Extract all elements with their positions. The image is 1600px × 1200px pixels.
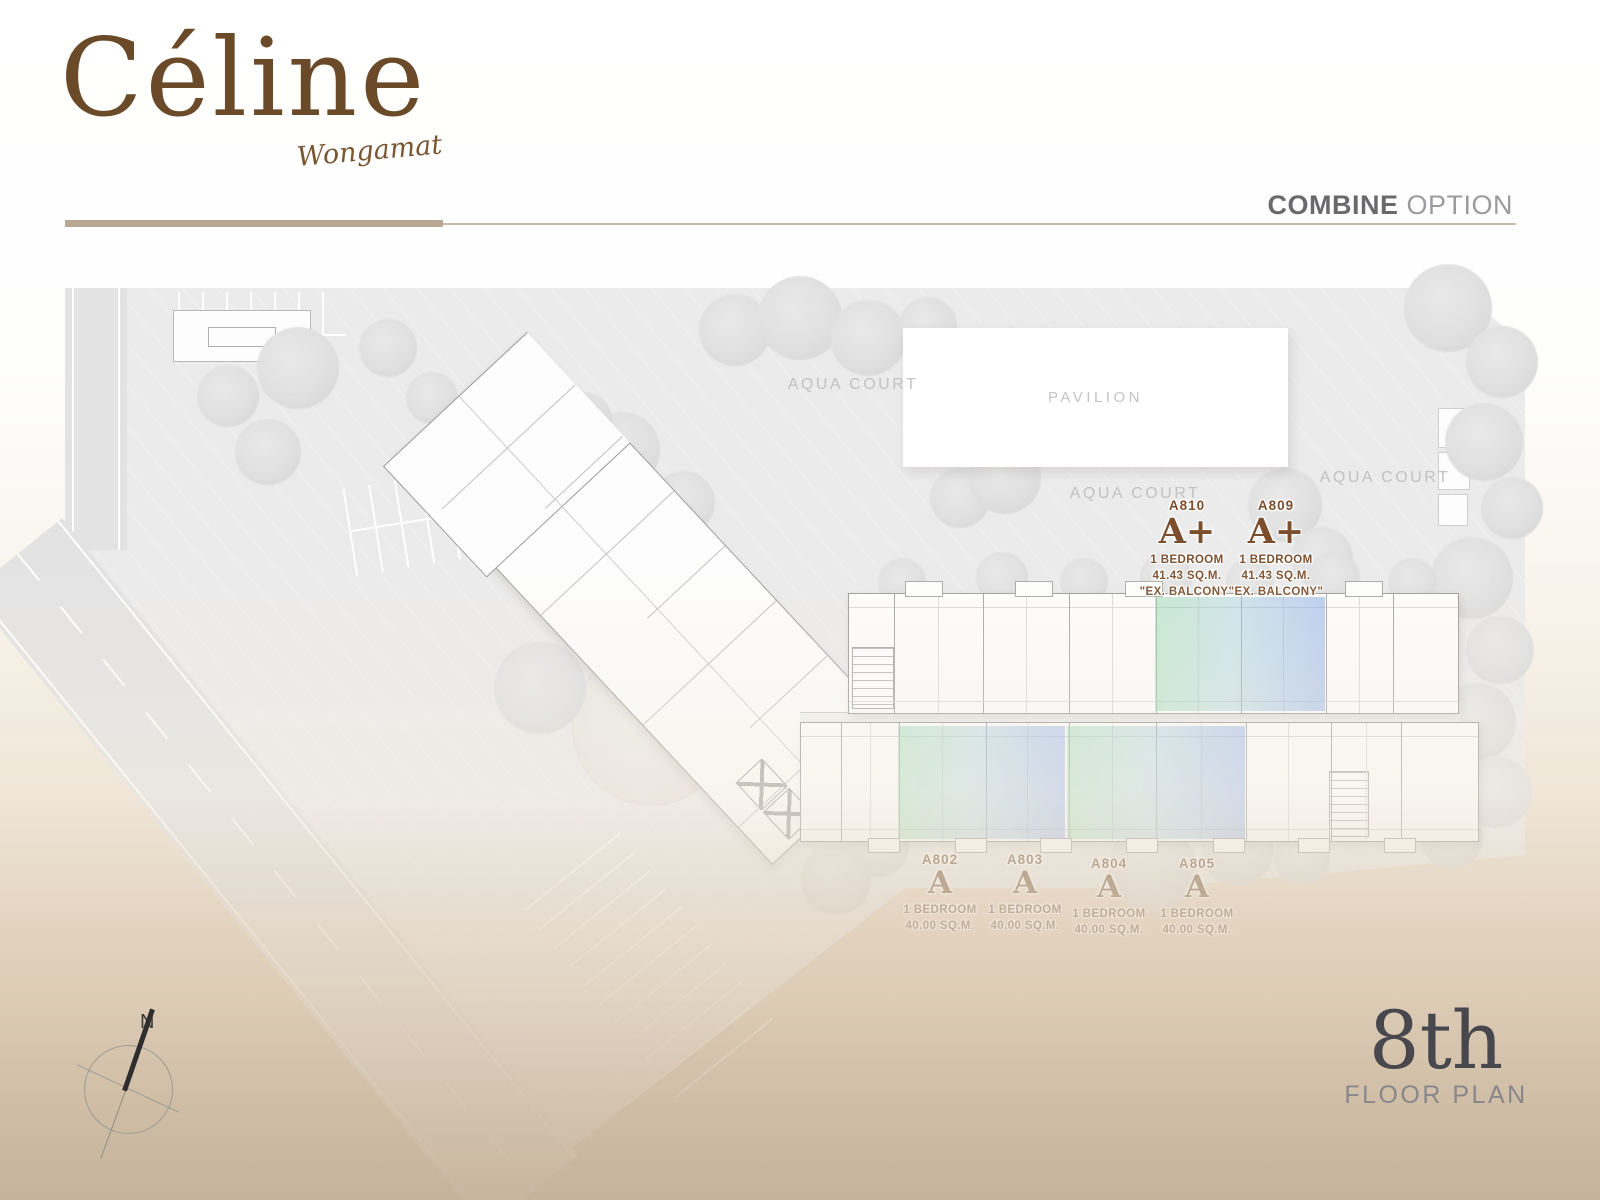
aqua-court-label-3: AQUA COURT xyxy=(1290,469,1480,487)
unit-note: "EX. BALCONY" xyxy=(1140,584,1235,600)
road-left xyxy=(65,288,127,550)
unit-type: A xyxy=(1072,872,1145,903)
unit-type: A+ xyxy=(1229,514,1324,549)
unit-label-a809: A809 A+ 1 BEDROOM 41.43 SQ.M. "EX. BALCO… xyxy=(1229,498,1324,600)
floor-number: 8th xyxy=(1330,1003,1542,1079)
combine-option-title: COMBINE OPTION xyxy=(1267,190,1513,221)
highlight-combined-a802-a803 xyxy=(898,726,1065,839)
room-partition xyxy=(938,594,939,713)
compass: N xyxy=(78,985,218,1160)
floor-plan-page: PAVILION AQUA COURT AQUA COURT AQUA COUR… xyxy=(0,0,1600,1200)
unit-type: A+ xyxy=(1140,514,1235,549)
highlight-combined-a810-a809 xyxy=(1155,597,1325,711)
unit-note: "EX. BALCONY" xyxy=(1229,584,1324,600)
room-partition xyxy=(1366,723,1367,841)
brand-name: Céline xyxy=(60,22,446,135)
unit-wall xyxy=(894,594,895,713)
unit-bedroom: 1 BEDROOM xyxy=(1072,906,1145,922)
unit-bedroom: 1 BEDROOM xyxy=(988,902,1061,918)
unit-bedroom: 1 BEDROOM xyxy=(1140,552,1235,568)
room-partition xyxy=(1026,594,1027,713)
room-partition xyxy=(870,723,871,841)
highlight-combined-a804-a805 xyxy=(1067,726,1245,839)
floor-label: FLOOR PLAN xyxy=(1330,1081,1542,1110)
unit-label-a802: A802 A 1 BEDROOM 40.00 SQ.M. xyxy=(903,852,976,934)
unit-wall xyxy=(1401,723,1402,841)
header-rule-thin xyxy=(443,223,1516,225)
room-partition xyxy=(648,546,726,619)
unit-type: A xyxy=(903,868,976,899)
unit-area: 41.43 SQ.M. xyxy=(1229,568,1324,584)
unit-area: 40.00 SQ.M. xyxy=(1160,922,1233,938)
deck-panel xyxy=(1438,494,1468,526)
building-upper-wing xyxy=(848,593,1459,714)
unit-wall xyxy=(1069,594,1070,713)
unit-area: 40.00 SQ.M. xyxy=(903,918,976,934)
entrance-structure xyxy=(173,310,311,362)
unit-wall xyxy=(841,723,842,841)
pavilion-label: PAVILION xyxy=(1048,389,1143,406)
unit-area: 41.43 SQ.M. xyxy=(1140,568,1235,584)
unit-wall xyxy=(1326,594,1327,713)
unit-type: A xyxy=(1160,872,1233,903)
header-rule-thick xyxy=(65,220,443,227)
room-partition xyxy=(1359,594,1360,713)
room-partition xyxy=(540,491,674,616)
stairs xyxy=(852,647,894,709)
combine-word: COMBINE xyxy=(1267,190,1398,220)
brand-logo: Céline Wongamat xyxy=(60,22,446,160)
unit-bedroom: 1 BEDROOM xyxy=(1160,906,1233,922)
pavilion: PAVILION xyxy=(903,328,1288,467)
unit-area: 40.00 SQ.M. xyxy=(988,918,1061,934)
unit-label-a810: A810 A+ 1 BEDROOM 41.43 SQ.M. "EX. BALCO… xyxy=(1140,498,1235,600)
unit-area: 40.00 SQ.M. xyxy=(1072,922,1145,938)
deck-panel xyxy=(1438,408,1470,448)
unit-label-a805: A805 A 1 BEDROOM 40.00 SQ.M. xyxy=(1160,856,1233,938)
unit-wall xyxy=(1331,723,1332,841)
room-partition xyxy=(643,600,777,725)
unit-wall xyxy=(1246,723,1247,841)
room-partition xyxy=(1112,594,1113,713)
room-partition xyxy=(1288,723,1289,841)
unit-wall xyxy=(983,594,984,713)
stairs xyxy=(1329,771,1369,837)
floor-badge: 8th FLOOR PLAN xyxy=(1330,1003,1542,1110)
option-word: OPTION xyxy=(1406,190,1513,220)
unit-wall xyxy=(1393,594,1394,713)
aqua-court-label-1: AQUA COURT xyxy=(758,376,948,394)
unit-type: A xyxy=(988,868,1061,899)
unit-bedroom: 1 BEDROOM xyxy=(1229,552,1324,568)
unit-label-a803: A803 A 1 BEDROOM 40.00 SQ.M. xyxy=(988,852,1061,934)
unit-label-a804: A804 A 1 BEDROOM 40.00 SQ.M. xyxy=(1072,856,1145,938)
unit-bedroom: 1 BEDROOM xyxy=(903,902,976,918)
